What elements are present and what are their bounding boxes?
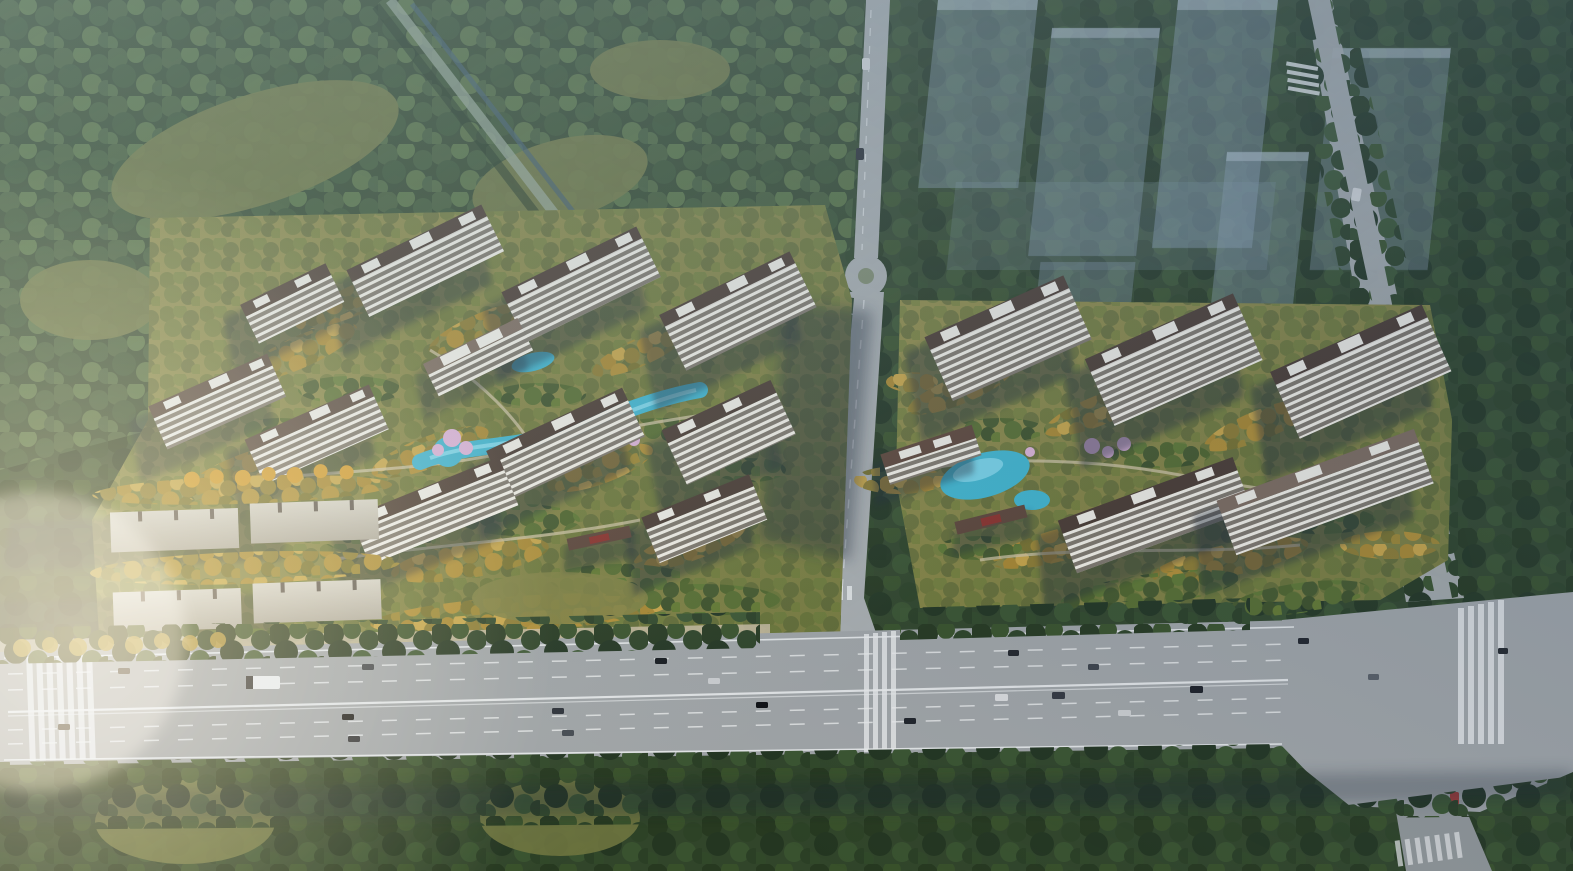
aerial-rendering: [0, 0, 1573, 871]
rendering-stage: [0, 0, 1573, 871]
